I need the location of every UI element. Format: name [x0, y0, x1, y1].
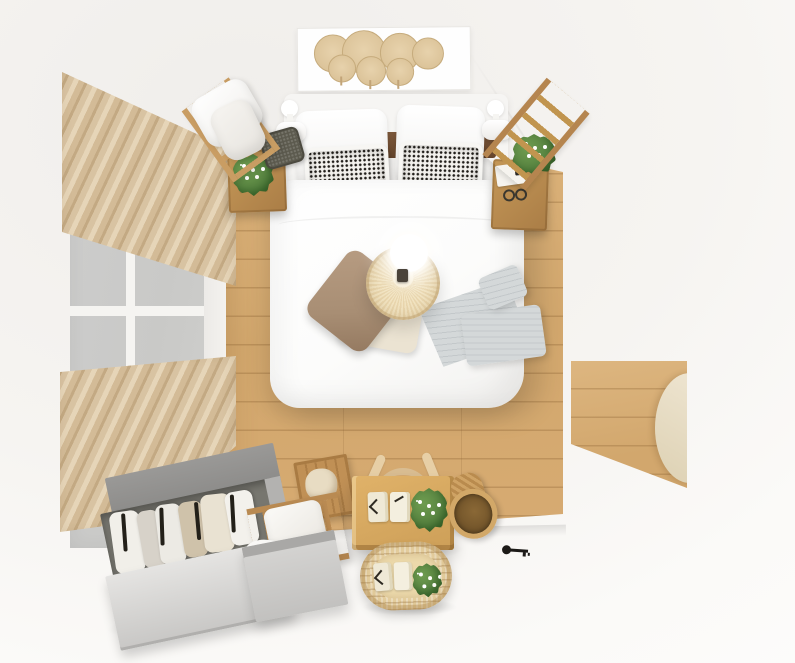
notebook-mark	[374, 570, 389, 585]
key-prong	[528, 553, 530, 556]
doorway-nook-floor	[571, 361, 687, 489]
pendant-stem	[397, 269, 408, 282]
desk-group	[350, 450, 456, 550]
plant-flowers	[417, 573, 419, 575]
notebook	[373, 562, 393, 591]
bedroom-top-view-render	[0, 0, 795, 663]
eyeglasses	[503, 188, 528, 200]
black-key	[502, 543, 533, 559]
open-door	[655, 373, 687, 483]
gray-cabinet	[242, 530, 349, 623]
fan-stem	[397, 80, 399, 89]
fan-stem	[340, 76, 342, 85]
plant-flowers	[416, 500, 418, 502]
notebook-mark	[369, 499, 385, 515]
window-mullion-horizontal	[70, 306, 204, 316]
duvet-fold-line	[278, 216, 518, 236]
palm-fan	[386, 58, 414, 86]
notebook	[390, 492, 410, 522]
notebook	[394, 562, 413, 591]
fan-art-shelf	[297, 26, 472, 92]
notebook	[367, 492, 388, 523]
fan-stem	[369, 80, 371, 89]
key-prong	[523, 552, 526, 556]
palm-fan	[412, 37, 444, 69]
rattan-pouf	[359, 540, 453, 611]
blanket-fold	[460, 304, 546, 367]
pendant-bulb-glow	[390, 234, 428, 272]
notebook-mark	[394, 496, 404, 503]
